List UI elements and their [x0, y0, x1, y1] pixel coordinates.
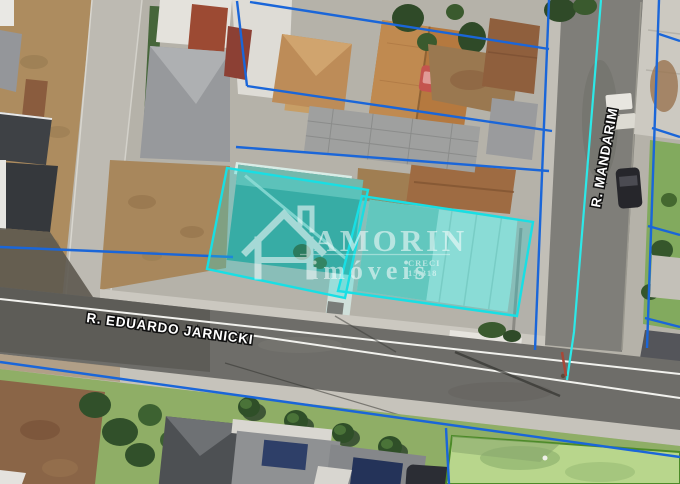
dark-car	[615, 167, 642, 209]
map-canvas: R. EDUARDO JARNICKI R. MANDARIM AMORIN i…	[0, 0, 680, 484]
watermark-creci-number: 15.318	[408, 268, 437, 278]
aerial-map-image: R. EDUARDO JARNICKI R. MANDARIM AMORIN i…	[0, 0, 680, 484]
house-bottom-1	[159, 416, 244, 484]
brick-stack	[22, 79, 48, 117]
watermark-creci-label: CRECI	[408, 258, 440, 268]
watermark-brand: AMORIN	[314, 223, 468, 258]
